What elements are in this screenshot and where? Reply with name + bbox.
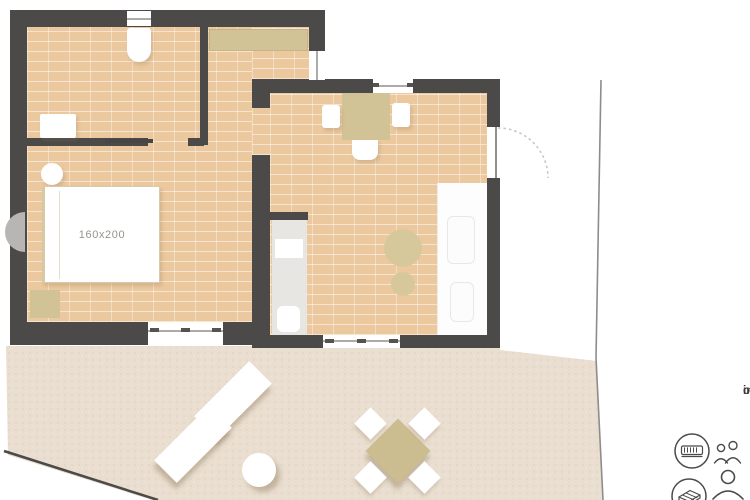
bathroom-wall-stub (188, 138, 204, 146)
wall-left (10, 10, 27, 345)
double-bed: 160x200 (42, 186, 160, 283)
dining-chair-left (322, 105, 340, 128)
bathroom-wall-right (200, 27, 208, 145)
wall-right-upper (309, 10, 325, 51)
pouf-small (391, 272, 415, 296)
living-wall-right-lower (487, 178, 500, 348)
bathroom-sink (40, 114, 76, 138)
terrace-sand (6, 346, 602, 500)
bed-size-label: 160x200 (45, 187, 159, 282)
sofa-bed (272, 220, 307, 335)
bed-bench (30, 290, 60, 318)
two-guests-icon (711, 439, 745, 466)
terrace-side-table (242, 453, 276, 487)
sofa-cushion (275, 239, 303, 258)
dining-chair-bottom (352, 140, 378, 160)
living-top-window (373, 79, 413, 93)
kitchen-sink (447, 216, 475, 264)
double-bed-icon (672, 431, 712, 471)
wall-bottom-mid (223, 322, 252, 345)
toilet (127, 28, 151, 62)
kitchen-cooktop (450, 282, 474, 322)
wardrobe (209, 29, 308, 51)
sofa-bed-icon (669, 476, 709, 500)
bathroom-sliding-door (105, 139, 153, 143)
pouf-large (384, 229, 422, 267)
living-wall-right-upper (487, 79, 500, 127)
dining-table (342, 93, 390, 140)
sofa-wall-stub (270, 212, 308, 220)
hallway-window (309, 51, 325, 80)
wall-bottom-left (10, 322, 148, 345)
living-terrace-window (323, 335, 400, 348)
entry-door-swing-arc (497, 127, 549, 179)
wall-top (10, 10, 325, 27)
kitchen-counter (437, 183, 487, 335)
one-guest-icon (710, 468, 746, 500)
bedroom-terrace-window (148, 322, 223, 345)
stool (41, 163, 63, 185)
outdoor-area-label: outdoor: 37.70 sqm (743, 385, 750, 426)
dining-chair-right (392, 103, 410, 127)
sofa-seat (277, 306, 300, 332)
floor-plan: 160x200 indoor: 36.20 sqm outdoor: 37.70… (0, 0, 750, 500)
bedroom-living-passage (252, 108, 270, 155)
bathroom-window (127, 11, 151, 26)
